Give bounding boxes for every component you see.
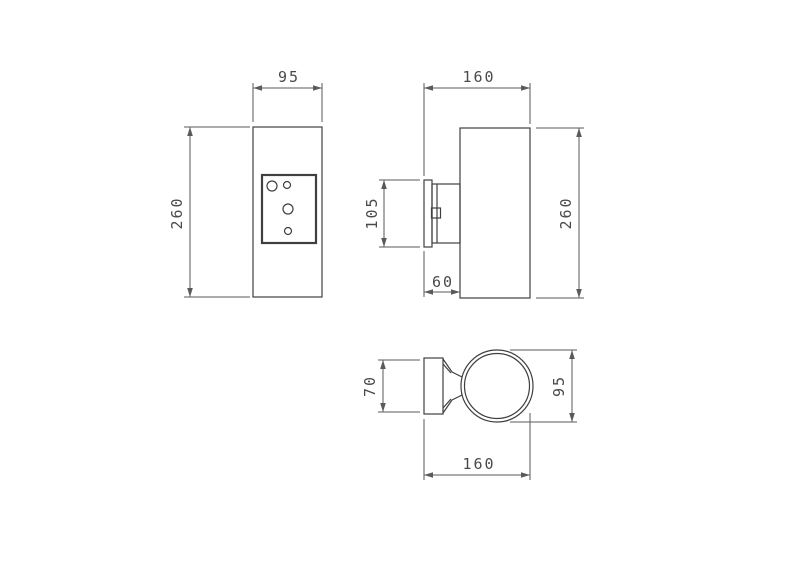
side-wall-plate (424, 180, 432, 247)
side-bracket-height-dimension: 105 (363, 180, 420, 247)
side-bracket-depth-dimension: 60 (424, 251, 460, 297)
dimension-label-front-height: 260 (168, 196, 186, 229)
bottom-depth-dimension: 160 (424, 413, 530, 480)
front-width-dimension: 95 (253, 68, 322, 122)
dimension-label-side-height: 260 (557, 196, 575, 229)
dimension-label-bottom-bracket-width: 70 (361, 375, 379, 397)
front-panel-hole-middle (283, 204, 293, 214)
dimension-label-front-width: 95 (278, 68, 300, 86)
dimension-label-side-bracket-height: 105 (363, 196, 381, 229)
bottom-wall-plate (424, 358, 443, 414)
technical-drawing-page: 95 260 160 (0, 0, 800, 565)
front-panel-hole-bottom (285, 228, 292, 235)
side-body-outline (460, 128, 530, 298)
side-mount-clip (432, 208, 441, 218)
bottom-view: 70 95 160 (361, 350, 577, 480)
technical-drawing-canvas: 95 260 160 (0, 0, 800, 565)
side-mount-block (432, 184, 460, 243)
front-body-outline (253, 127, 322, 297)
front-height-dimension: 260 (168, 127, 250, 297)
bottom-body-inner-circle (465, 354, 530, 419)
front-panel-hole-top-left (267, 181, 277, 191)
front-view: 95 260 (168, 68, 322, 297)
bottom-bracket-width-dimension: 70 (361, 360, 420, 412)
front-panel-hole-top-right (284, 182, 291, 189)
front-panel-outline (262, 175, 316, 243)
bottom-body-outer-circle (461, 350, 533, 422)
bottom-diameter-dimension: 95 (510, 350, 577, 422)
side-height-dimension: 260 (536, 128, 584, 298)
dimension-label-bottom-depth: 160 (462, 455, 495, 473)
dimension-label-side-width: 160 (462, 68, 495, 86)
dimension-label-bottom-diameter: 95 (550, 375, 568, 397)
dimension-label-side-bracket-depth: 60 (432, 273, 454, 291)
side-view: 160 105 60 260 (363, 68, 584, 298)
bottom-neck-bottom (452, 395, 462, 400)
bottom-neck-top (452, 372, 462, 377)
side-width-dimension: 160 (424, 68, 530, 176)
